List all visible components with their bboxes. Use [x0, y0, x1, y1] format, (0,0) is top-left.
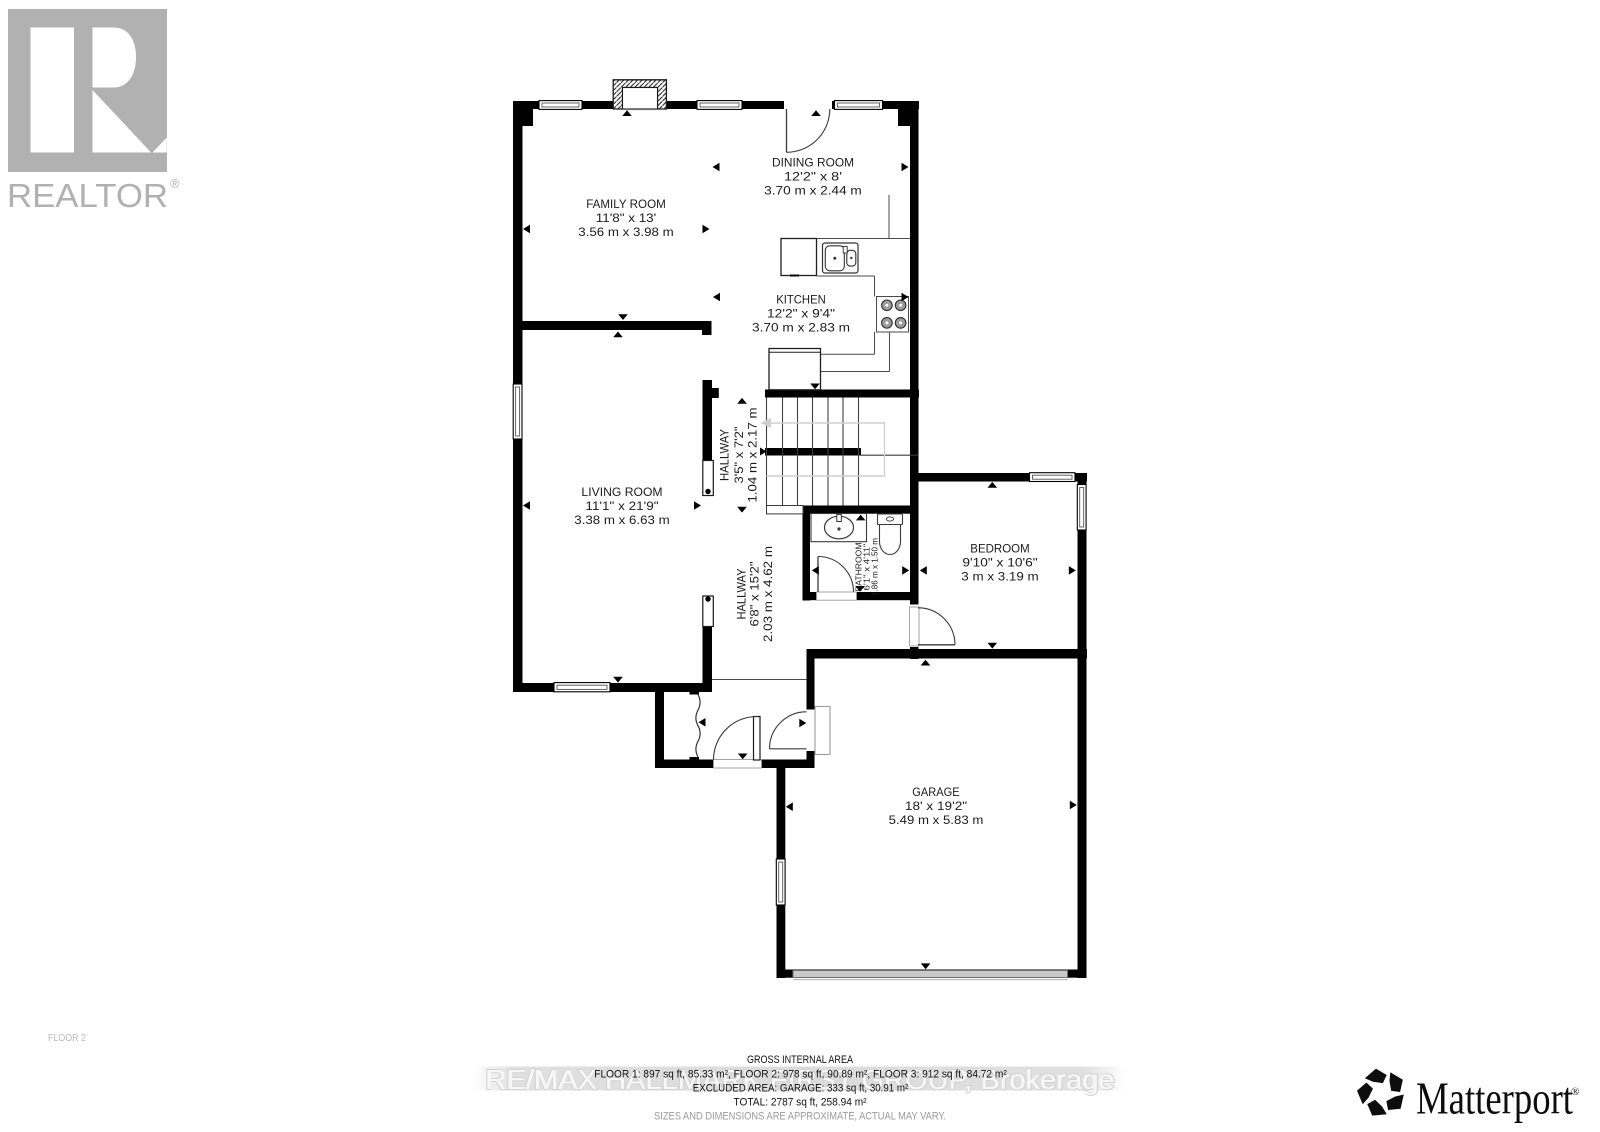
svg-text:FLOOR 2: FLOOR 2 — [48, 1033, 86, 1044]
svg-text:18' x 19'2": 18' x 19'2" — [905, 799, 967, 813]
svg-text:2.03 m x 4.62 m: 2.03 m x 4.62 m — [761, 546, 775, 642]
svg-text:GROSS INTERNAL AREA: GROSS INTERNAL AREA — [747, 1054, 854, 1066]
svg-text:12'2" x 8': 12'2" x 8' — [784, 170, 842, 184]
svg-text:SIZES AND DIMENSIONS ARE APPRO: SIZES AND DIMENSIONS ARE APPROXIMATE, AC… — [654, 1111, 946, 1123]
svg-text:9'10" x 10'6": 9'10" x 10'6" — [962, 556, 1037, 570]
svg-text:3'5" x 7'2": 3'5" x 7'2" — [732, 427, 746, 484]
svg-text:Matterport: Matterport — [1416, 1073, 1573, 1124]
svg-text:5.49 m x 5.83 m: 5.49 m x 5.83 m — [889, 813, 984, 827]
svg-text:GARAGE: GARAGE — [912, 785, 960, 799]
svg-text:KITCHEN: KITCHEN — [776, 293, 826, 307]
svg-text:®: ® — [1571, 1086, 1579, 1098]
svg-text:BEDROOM: BEDROOM — [970, 542, 1029, 556]
svg-text:FAMILY ROOM: FAMILY ROOM — [586, 197, 666, 211]
svg-text:1.86 m x 1.50 m: 1.86 m x 1.50 m — [870, 538, 880, 596]
svg-text:REALTOR: REALTOR — [7, 177, 168, 214]
svg-text:DINING ROOM: DINING ROOM — [772, 156, 854, 170]
svg-text:TOTAL: 2787 sq ft, 258.94 m²: TOTAL: 2787 sq ft, 258.94 m² — [734, 1097, 867, 1109]
svg-text:1.04 m x 2.17 m: 1.04 m x 2.17 m — [746, 407, 760, 502]
svg-text:3.38 m x 6.63 m: 3.38 m x 6.63 m — [574, 513, 670, 527]
svg-text:LIVING ROOM: LIVING ROOM — [581, 485, 662, 499]
svg-text:3.56 m x 3.98 m: 3.56 m x 3.98 m — [578, 225, 674, 239]
svg-text:®: ® — [170, 176, 180, 191]
svg-text:3 m x 3.19 m: 3 m x 3.19 m — [961, 570, 1039, 584]
svg-text:HALLWAY: HALLWAY — [734, 568, 748, 619]
svg-text:11'1" x 21'9": 11'1" x 21'9" — [585, 499, 658, 513]
svg-text:HALLWAY: HALLWAY — [717, 429, 731, 481]
svg-text:3.70 m x 2.44 m: 3.70 m x 2.44 m — [764, 184, 862, 198]
svg-text:12'2" x 9'4": 12'2" x 9'4" — [767, 307, 835, 321]
svg-text:EXCLUDED AREA: GARAGE: 333 sq: EXCLUDED AREA: GARAGE: 333 sq ft, 30.91 … — [693, 1083, 909, 1095]
svg-text:11'8" x 13': 11'8" x 13' — [596, 211, 656, 225]
svg-text:3.70 m x 2.83 m: 3.70 m x 2.83 m — [752, 321, 850, 335]
svg-text:6'8" x 15'2": 6'8" x 15'2" — [748, 562, 762, 627]
svg-text:FLOOR 1: 897 sq ft, 85.33 m²,: FLOOR 1: 897 sq ft, 85.33 m², FLOOR 2: 9… — [594, 1069, 1007, 1081]
